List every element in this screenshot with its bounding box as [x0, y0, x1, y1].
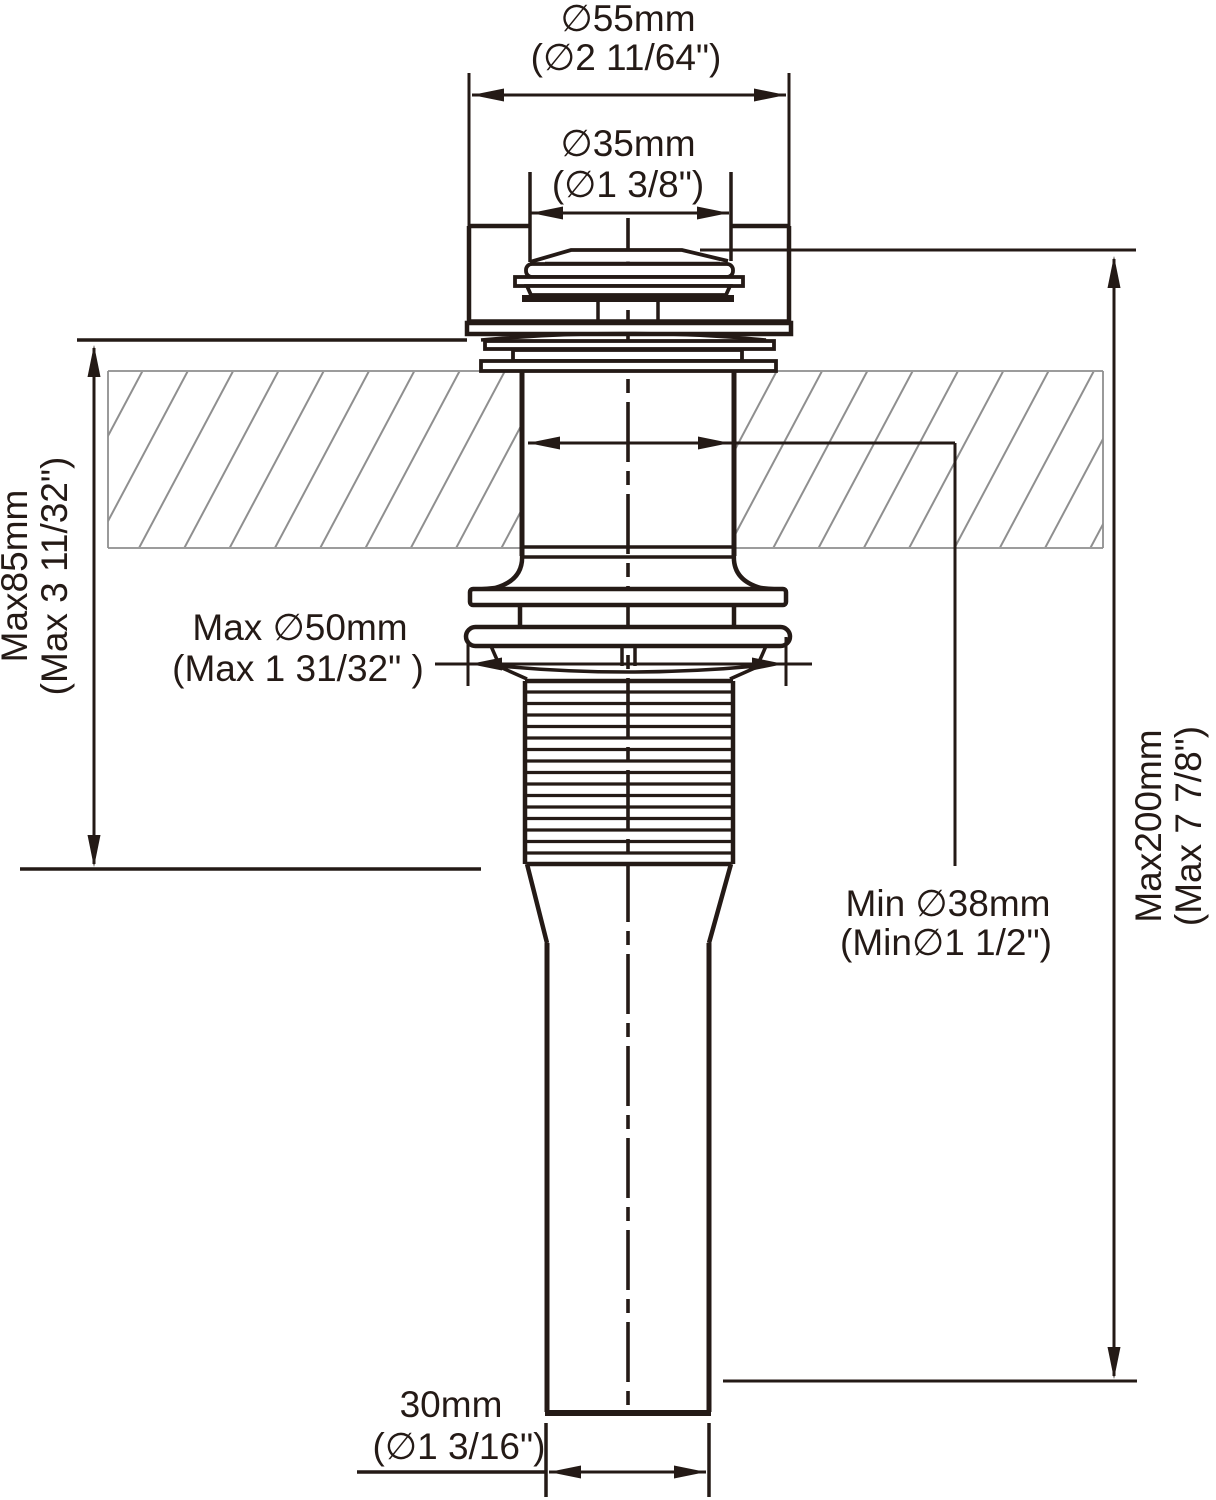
- arrowhead-right: [752, 658, 784, 671]
- locknut: [466, 627, 790, 646]
- drawing-page: ∅55mm (∅2 11/64") ∅35mm (∅1 3/8") Max85m…: [0, 0, 1216, 1500]
- popup-cap-base: [527, 286, 730, 295]
- flange-base-washer: [481, 361, 776, 371]
- arrowhead-left: [470, 658, 502, 671]
- arrowhead-left: [528, 437, 560, 450]
- dim-label-metric: ∅55mm: [560, 0, 695, 39]
- arrowhead-left: [549, 1466, 581, 1479]
- thread-lines: [525, 692, 733, 853]
- dim-label-metric: Min ∅38mm: [846, 883, 1051, 924]
- dim-label-metric: Max ∅50mm: [192, 607, 407, 648]
- countertop-hatch-right: [736, 372, 1103, 547]
- dim-label-imperial: (∅1 3/16"): [373, 1426, 546, 1467]
- countertop-hatch-left: [108, 372, 520, 547]
- extension-lines: [546, 1423, 709, 1497]
- mounting-flange: [467, 321, 791, 371]
- dim-label-imperial: (∅1 3/8"): [552, 164, 704, 205]
- arrowhead-top: [1108, 256, 1121, 288]
- dim-label-imperial: (Max 3 11/32"): [34, 457, 75, 696]
- drain-assembly: [466, 172, 791, 1413]
- dim-label-metric: Max200mm: [1128, 729, 1169, 922]
- popup-cap-dome: [530, 250, 728, 262]
- arrowhead-left: [531, 207, 563, 220]
- arrowhead-right: [674, 1466, 706, 1479]
- dim-label-metric: 30mm: [400, 1384, 503, 1425]
- arrowhead-right: [754, 89, 786, 102]
- drain-dimension-diagram: ∅55mm (∅2 11/64") ∅35mm (∅1 3/8") Max85m…: [0, 0, 1216, 1500]
- flange-gasket-upper: [485, 341, 774, 349]
- dim-label-metric: ∅35mm: [560, 123, 695, 164]
- dim-label-imperial: (Max 7 7/8"): [1168, 726, 1209, 926]
- arrowhead-bottom: [1108, 1347, 1121, 1379]
- popup-cap-seat: [522, 295, 734, 302]
- bell-left: [474, 554, 522, 590]
- dim-label-imperial: (∅2 11/64"): [531, 37, 722, 78]
- arrowhead-bottom: [88, 835, 101, 867]
- dim-label-imperial: (Min∅1 1/2"): [840, 922, 1052, 963]
- bell-right: [734, 554, 782, 590]
- dim-label-imperial: (Max 1 31/32" ): [172, 648, 424, 689]
- arrowhead-top: [88, 345, 101, 377]
- dim-cap-top-diameter: ∅35mm (∅1 3/8"): [531, 123, 729, 220]
- arrowhead-right: [698, 437, 730, 450]
- friction-washer: [470, 589, 786, 605]
- arrowhead-right: [697, 207, 729, 220]
- dim-label-metric: Max85mm: [0, 490, 35, 663]
- arrowhead-left: [472, 89, 504, 102]
- dim-tailpipe-diameter: 30mm (∅1 3/16"): [357, 1384, 709, 1497]
- popup-cap-side: [526, 264, 733, 277]
